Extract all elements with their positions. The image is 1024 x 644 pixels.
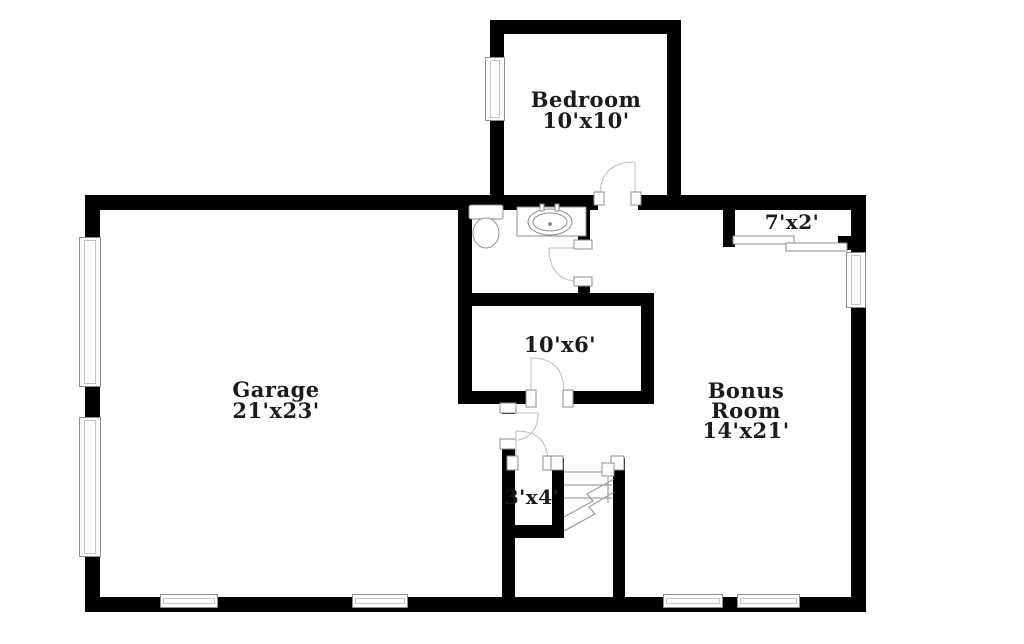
stair-closet-size: 3'x4': [505, 485, 560, 509]
bonus-room-size: 14'x21': [702, 418, 789, 443]
sliding-door-icon: [733, 236, 847, 251]
stair-closet-label: 3'x4': [482, 487, 582, 507]
bedroom-size: 10'x10': [542, 108, 629, 133]
top-closet-size: 7'x2': [765, 210, 820, 234]
garage-label: Garage 21'x23': [176, 379, 376, 421]
sink-icon: [517, 204, 586, 236]
hall-room-label: 10'x6': [470, 334, 650, 355]
stair-closet-door-icon: [507, 431, 554, 470]
hall-room-size: 10'x6': [524, 332, 596, 357]
toilet-icon: [469, 205, 503, 248]
bedroom-label: Bedroom 10'x10': [490, 89, 682, 131]
bonus-room-label: Bonus Room 14'x21': [646, 381, 846, 441]
hall-room-door-icon: [526, 358, 573, 407]
floor-plan: Bedroom 10'x10' Garage 21'x23' 10'x6' Bo…: [0, 0, 1024, 644]
garage-size: 21'x23': [232, 398, 319, 423]
garage-hall-door-icon: [500, 403, 538, 449]
bedroom-door-icon: [594, 162, 641, 205]
bathroom-door-icon: [549, 240, 592, 286]
top-closet-label: 7'x2': [742, 212, 842, 232]
